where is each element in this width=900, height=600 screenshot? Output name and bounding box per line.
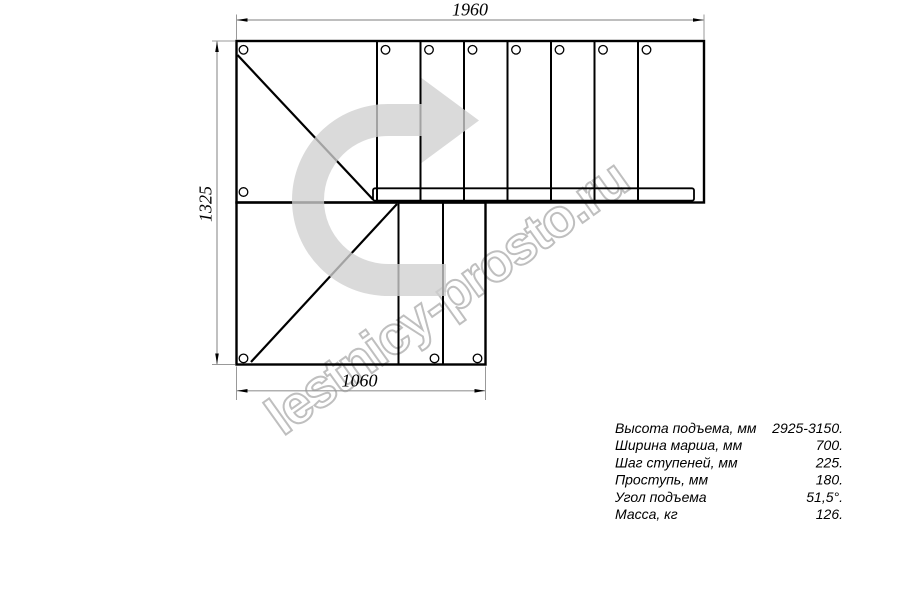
svg-text:Шаг ступеней, мм: Шаг ступеней, мм: [615, 454, 738, 470]
svg-text:2925-3150.: 2925-3150.: [771, 420, 843, 436]
svg-text:Ширина марша, мм: Ширина марша, мм: [615, 437, 743, 453]
svg-text:700.: 700.: [816, 437, 843, 453]
svg-text:126.: 126.: [816, 506, 843, 522]
svg-text:1325: 1325: [196, 186, 216, 222]
svg-text:Масса, кг: Масса, кг: [615, 506, 678, 522]
svg-text:180.: 180.: [816, 472, 843, 488]
svg-text:1060: 1060: [342, 371, 378, 391]
svg-text:225.: 225.: [815, 454, 843, 470]
svg-text:51,5°.: 51,5°.: [806, 489, 843, 505]
svg-text:Проступь, мм: Проступь, мм: [615, 472, 709, 488]
svg-text:1960: 1960: [452, 0, 488, 20]
svg-text:Угол подъема: Угол подъема: [614, 489, 707, 505]
svg-text:Высота подъема, мм: Высота подъема, мм: [615, 420, 757, 436]
